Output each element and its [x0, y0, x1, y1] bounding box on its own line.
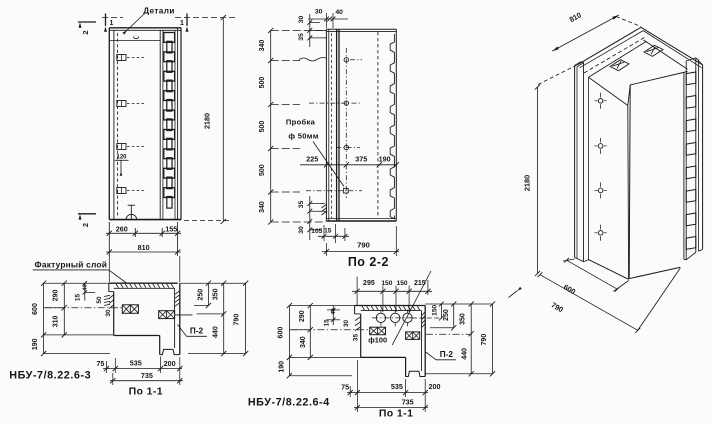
svg-text:350: 350	[213, 288, 220, 300]
svg-text:1: 1	[180, 20, 184, 27]
svg-text:600: 600	[278, 327, 285, 339]
svg-text:По 2-2: По 2-2	[348, 255, 389, 269]
svg-text:35: 35	[298, 33, 305, 41]
svg-text:150: 150	[431, 304, 438, 315]
svg-text:35: 35	[298, 201, 305, 209]
svg-text:2180: 2180	[523, 175, 532, 191]
svg-text:30: 30	[298, 16, 305, 24]
svg-text:По 1-1: По 1-1	[379, 407, 413, 419]
svg-text:105: 105	[311, 228, 322, 235]
svg-text:15: 15	[74, 294, 81, 302]
svg-text:375: 375	[355, 154, 367, 163]
svg-text:735: 735	[141, 371, 153, 380]
svg-text:790: 790	[357, 241, 370, 250]
svg-text:190: 190	[278, 361, 285, 373]
svg-text:295: 295	[363, 280, 375, 287]
svg-text:500: 500	[259, 77, 266, 89]
svg-text:30: 30	[343, 320, 350, 328]
svg-text:290: 290	[299, 310, 306, 322]
svg-text:НБУ-7/8.22.6-4: НБУ-7/8.22.6-4	[248, 396, 330, 408]
svg-text:75: 75	[341, 382, 349, 391]
svg-text:200: 200	[164, 359, 176, 368]
svg-text:150: 150	[397, 280, 408, 287]
svg-text:735: 735	[402, 398, 414, 407]
svg-text:П-2: П-2	[190, 326, 204, 335]
svg-text:120: 120	[116, 155, 127, 161]
svg-text:1: 1	[110, 20, 114, 27]
svg-text:225: 225	[306, 154, 318, 163]
svg-text:35: 35	[353, 334, 360, 342]
svg-text:340: 340	[300, 336, 307, 348]
svg-text:260: 260	[116, 224, 128, 233]
svg-text:30: 30	[298, 226, 305, 234]
svg-text:200: 200	[429, 382, 441, 391]
svg-text:250: 250	[443, 309, 450, 321]
svg-text:350: 350	[460, 313, 467, 325]
svg-text:30: 30	[105, 309, 112, 317]
svg-text:340: 340	[259, 201, 266, 213]
svg-text:340: 340	[259, 40, 266, 52]
svg-text:50: 50	[96, 296, 103, 304]
svg-text:2180: 2180	[203, 113, 212, 129]
svg-text:190: 190	[32, 338, 39, 350]
svg-text:40: 40	[335, 9, 343, 16]
svg-text:215: 215	[414, 280, 426, 287]
svg-text:П-2: П-2	[440, 350, 454, 359]
svg-text:790: 790	[481, 334, 488, 346]
svg-text:810: 810	[138, 243, 150, 252]
svg-text:ф100: ф100	[368, 336, 387, 345]
svg-text:440: 440	[461, 348, 468, 360]
svg-text:790: 790	[234, 314, 241, 326]
svg-text:190: 190	[379, 154, 391, 163]
svg-text:ф 50мм: ф 50мм	[288, 132, 318, 141]
svg-text:15: 15	[324, 228, 332, 235]
svg-text:30: 30	[315, 8, 323, 15]
svg-text:600: 600	[32, 303, 39, 315]
svg-text:310: 310	[53, 315, 60, 327]
svg-text:500: 500	[259, 121, 266, 133]
svg-text:155: 155	[165, 224, 177, 233]
svg-text:500: 500	[259, 164, 266, 176]
svg-text:40: 40	[83, 284, 89, 290]
svg-text:2: 2	[81, 223, 90, 227]
svg-text:2: 2	[81, 30, 90, 34]
svg-text:По 1-1: По 1-1	[129, 386, 163, 398]
svg-text:Пробка: Пробка	[286, 118, 316, 127]
svg-text:Фактурный слой: Фактурный слой	[35, 259, 108, 269]
svg-text:440: 440	[213, 326, 220, 338]
svg-text:290: 290	[53, 289, 60, 301]
svg-text:40: 40	[331, 308, 337, 314]
svg-text:75: 75	[96, 359, 104, 368]
svg-text:535: 535	[391, 382, 403, 391]
svg-text:Детали: Детали	[143, 7, 175, 16]
svg-text:НБУ-7/8.22.6-3: НБУ-7/8.22.6-3	[9, 370, 91, 382]
svg-text:250: 250	[198, 289, 205, 301]
svg-text:535: 535	[130, 359, 142, 368]
